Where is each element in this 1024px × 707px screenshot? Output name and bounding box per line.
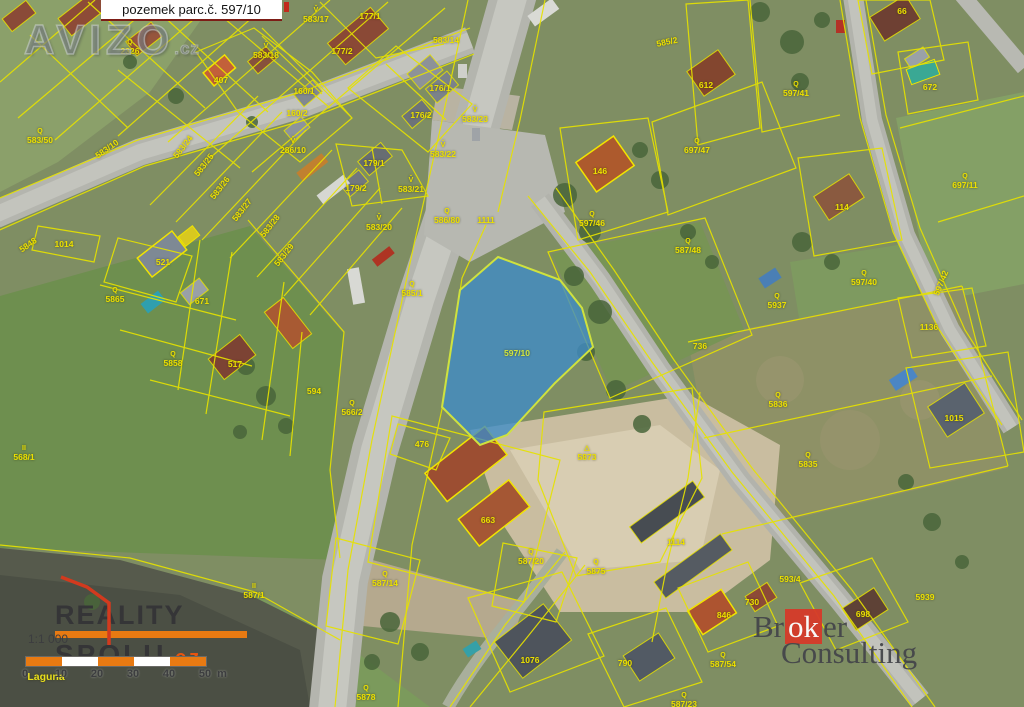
parcel-label-583-50: Q583/50 — [27, 128, 53, 145]
parcel-label-730: 730 — [745, 598, 759, 607]
parcel-label-583-27: 583/27 — [231, 197, 254, 223]
parcel-label-672: 672 — [923, 83, 937, 92]
scale-bar — [25, 656, 207, 667]
parcel-label-597-40: Q597/40 — [851, 270, 877, 287]
parcel-label-587-48: Q587/48 — [675, 238, 701, 255]
parcel-label-407: 407 — [214, 76, 228, 85]
parcel-label-612: 612 — [699, 81, 713, 90]
parcel-label-736: 736 — [693, 342, 707, 351]
parcel-label-566-2: Q566/2 — [341, 400, 362, 417]
parcel-label-671: 671 — [195, 297, 209, 306]
parcel-label-583-23: V̌583/23 — [462, 107, 488, 124]
parcel-label-583-28: 583/28 — [259, 213, 282, 239]
scale-tick: 20 — [91, 668, 103, 680]
parcel-label-585-1: Q585/1 — [401, 281, 422, 298]
parcel-label-583-18: V̌583/18 — [253, 43, 279, 60]
parcel-label-1136: 1136 — [920, 323, 938, 332]
parcel-label-286-10: V̌286/10 — [280, 138, 306, 155]
parcel-label-585-2: 585/2 — [656, 36, 679, 49]
scale-bar-segment — [170, 657, 206, 666]
scale-tick: 50 — [199, 668, 211, 680]
broker-consulting-logo: Broker Consulting — [753, 611, 917, 668]
parcel-label-586-80: Q586/80 — [434, 208, 460, 225]
parcel-label-587-1: II587/1 — [243, 583, 264, 600]
parcel-label-587-14: Q587/14 — [372, 571, 398, 588]
parcel-label-697-47: Q697/47 — [684, 138, 710, 155]
parcel-label-583-25: 583/25 — [193, 152, 216, 178]
parcel-label-587-23: Q587/23 — [671, 692, 697, 707]
parcel-label-521: 521 — [156, 258, 170, 267]
parcel-label-583-24: 583/24 — [172, 134, 195, 160]
parcel-label-587-54: Q587/54 — [710, 652, 736, 669]
parcel-label-179-2: 179/2 — [345, 184, 366, 193]
parcel-label-790: 790 — [618, 659, 632, 668]
parcel-label-5873: △5873 — [578, 445, 597, 462]
parcel-label-517: 517 — [228, 360, 242, 369]
parcel-label-5835: Q5835 — [799, 452, 818, 469]
cadastral-map-viewport: Q2326Q583/50583/10V̌583/17177/1V̌583/181… — [0, 0, 1024, 707]
avizo-tld-text: .cz — [174, 39, 200, 58]
parcel-label-583-14: 583/14 — [433, 36, 459, 45]
parcel-label-568-1: II568/1 — [13, 445, 34, 462]
parcel-title-text: pozemek parc.č. 597/10 — [122, 2, 261, 17]
parcel-label-597-41: Q597/41 — [783, 81, 809, 98]
scale-bar-segment — [62, 657, 98, 666]
parcel-label-583-26: 583/26 — [209, 175, 232, 201]
parcel-label-663: 663 — [481, 516, 495, 525]
parcel-label-66: 66 — [897, 7, 906, 16]
parcel-label-5875: Q5875 — [587, 559, 606, 576]
parcel-label-583-20: V̌583/20 — [366, 215, 392, 232]
parcel-label-1111: 1111 — [477, 216, 495, 225]
parcel-label-1114: 1114 — [667, 538, 685, 547]
parcel-label-176-1: 176/1 — [429, 84, 450, 93]
parcel-label-583-22: V̌583/22 — [430, 142, 456, 159]
parcel-label-583-29: 583/29 — [273, 242, 296, 268]
parcel-label-597-10: 597/10 — [504, 349, 530, 358]
map-scale: 1:1 000 01020304050m — [22, 630, 252, 690]
parcel-label-5848: 5848 — [18, 236, 38, 254]
parcel-label-5836: Q5836 — [769, 392, 788, 409]
parcel-label-1076: 1076 — [521, 656, 540, 665]
parcel-label-177-1: 177/1 — [359, 12, 380, 21]
scale-tick: 40 — [163, 668, 175, 680]
parcel-label-593-4: 593/4 — [779, 575, 800, 584]
parcel-label-697-11: Q697/11 — [952, 173, 978, 190]
parcel-label-5939: 5939 — [916, 593, 935, 602]
parcel-label-146: 146 — [593, 167, 607, 176]
parcel-label-1014: 1014 — [55, 240, 74, 249]
parcel-label-160-2: 160/2 — [286, 109, 307, 118]
parcel-label-476: 476 — [415, 440, 429, 449]
parcel-label-5865: Q5865 — [106, 287, 125, 304]
parcel-label-583-17: V̌583/17 — [303, 7, 329, 24]
parcel-label-846: 846 — [717, 611, 731, 620]
title-red-mark-icon — [284, 2, 289, 12]
scale-bar-segment — [26, 657, 62, 666]
parcel-label-1015: 1015 — [945, 414, 964, 423]
scale-tick: 10 — [55, 668, 67, 680]
parcel-label-583-10: 583/10 — [94, 138, 120, 160]
parcel-label-114: 114 — [835, 203, 849, 212]
parcel-label-176-2: 176/2 — [410, 111, 431, 120]
scale-ratio: 1:1 000 — [28, 632, 68, 646]
scale-unit: m — [217, 668, 227, 680]
parcel-label-5878: Q5878 — [357, 685, 376, 702]
parcel-label-179-1: 179/1 — [363, 159, 384, 168]
scale-tick: 30 — [127, 668, 139, 680]
scale-tick: 0 — [22, 668, 28, 680]
parcel-label-5937: Q5937 — [768, 293, 787, 310]
scale-bar-segment — [134, 657, 170, 666]
parcel-label-5858: Q5858 — [164, 351, 183, 368]
parcel-label-587-20: Q587/20 — [518, 549, 544, 566]
avizo-watermark: AVIZO.cz — [24, 16, 200, 64]
parcel-label-583-21: V̌583/21 — [398, 177, 424, 194]
parcel-label-594: 594 — [307, 387, 321, 396]
broker-logo-line2: Consulting — [781, 637, 917, 668]
parcel-label-160-1: 160/1 — [293, 87, 314, 96]
parcel-label-597-42: 597/42 — [932, 269, 950, 296]
avizo-brand-text: AVIZO — [24, 16, 174, 63]
parcel-label-597-46: Q597/46 — [579, 211, 605, 228]
parcel-label-177-2: 177/2 — [331, 47, 352, 56]
scale-bar-segment — [98, 657, 134, 666]
